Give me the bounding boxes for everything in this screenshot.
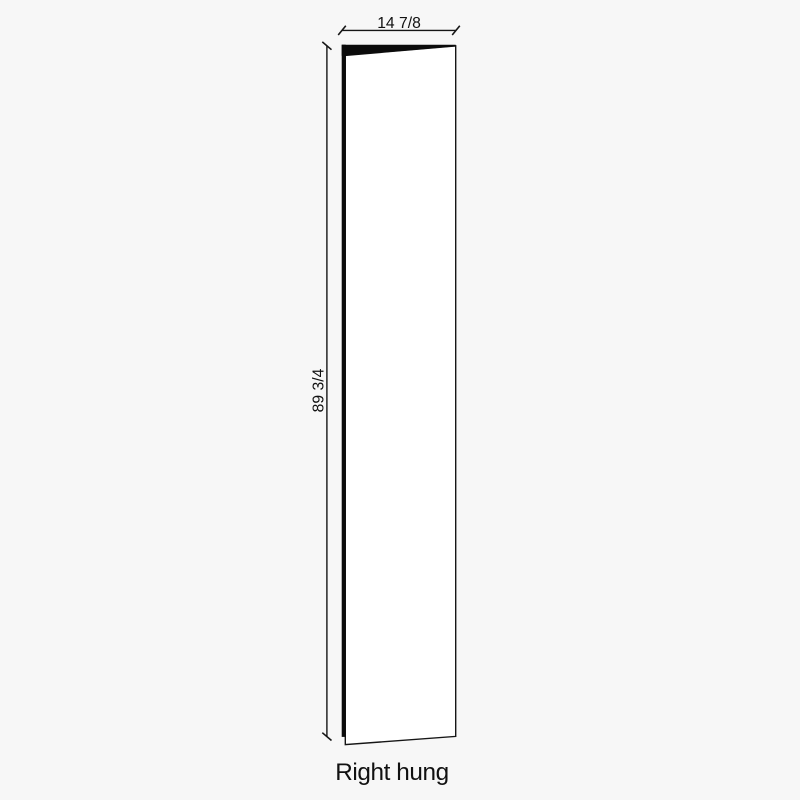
svg-text:89 3/4: 89 3/4	[310, 368, 327, 412]
svg-text:Right hung: Right hung	[335, 759, 449, 786]
svg-text:14 7/8: 14 7/8	[377, 15, 421, 32]
